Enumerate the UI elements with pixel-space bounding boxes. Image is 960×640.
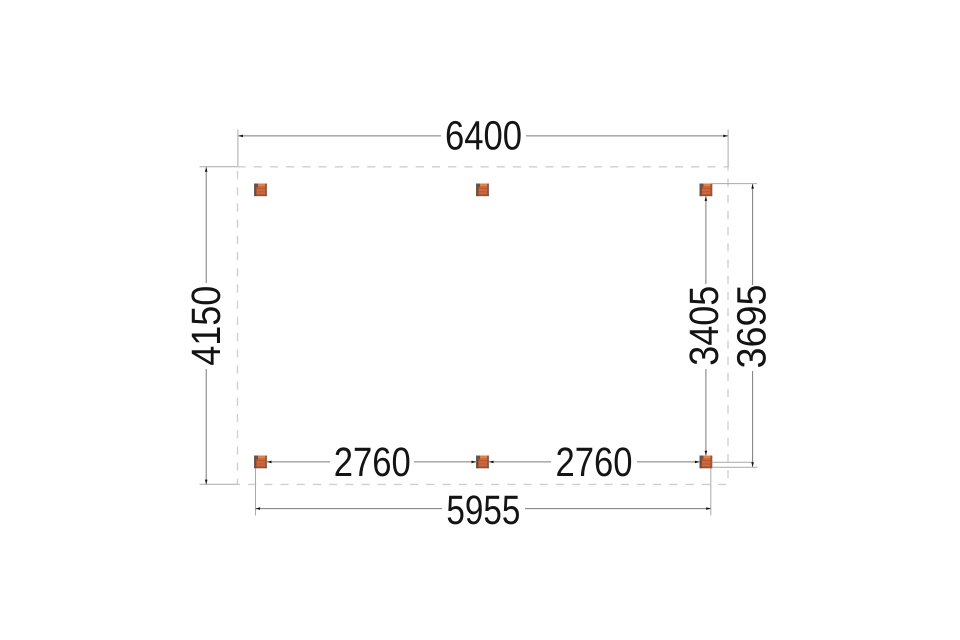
- svg-text:4150: 4150: [183, 286, 229, 366]
- svg-text:5955: 5955: [446, 487, 520, 533]
- svg-text:3405: 3405: [681, 286, 727, 366]
- svg-text:2760: 2760: [334, 439, 411, 485]
- svg-text:6400: 6400: [445, 113, 522, 159]
- svg-text:3695: 3695: [729, 285, 775, 369]
- svg-text:2760: 2760: [556, 439, 633, 485]
